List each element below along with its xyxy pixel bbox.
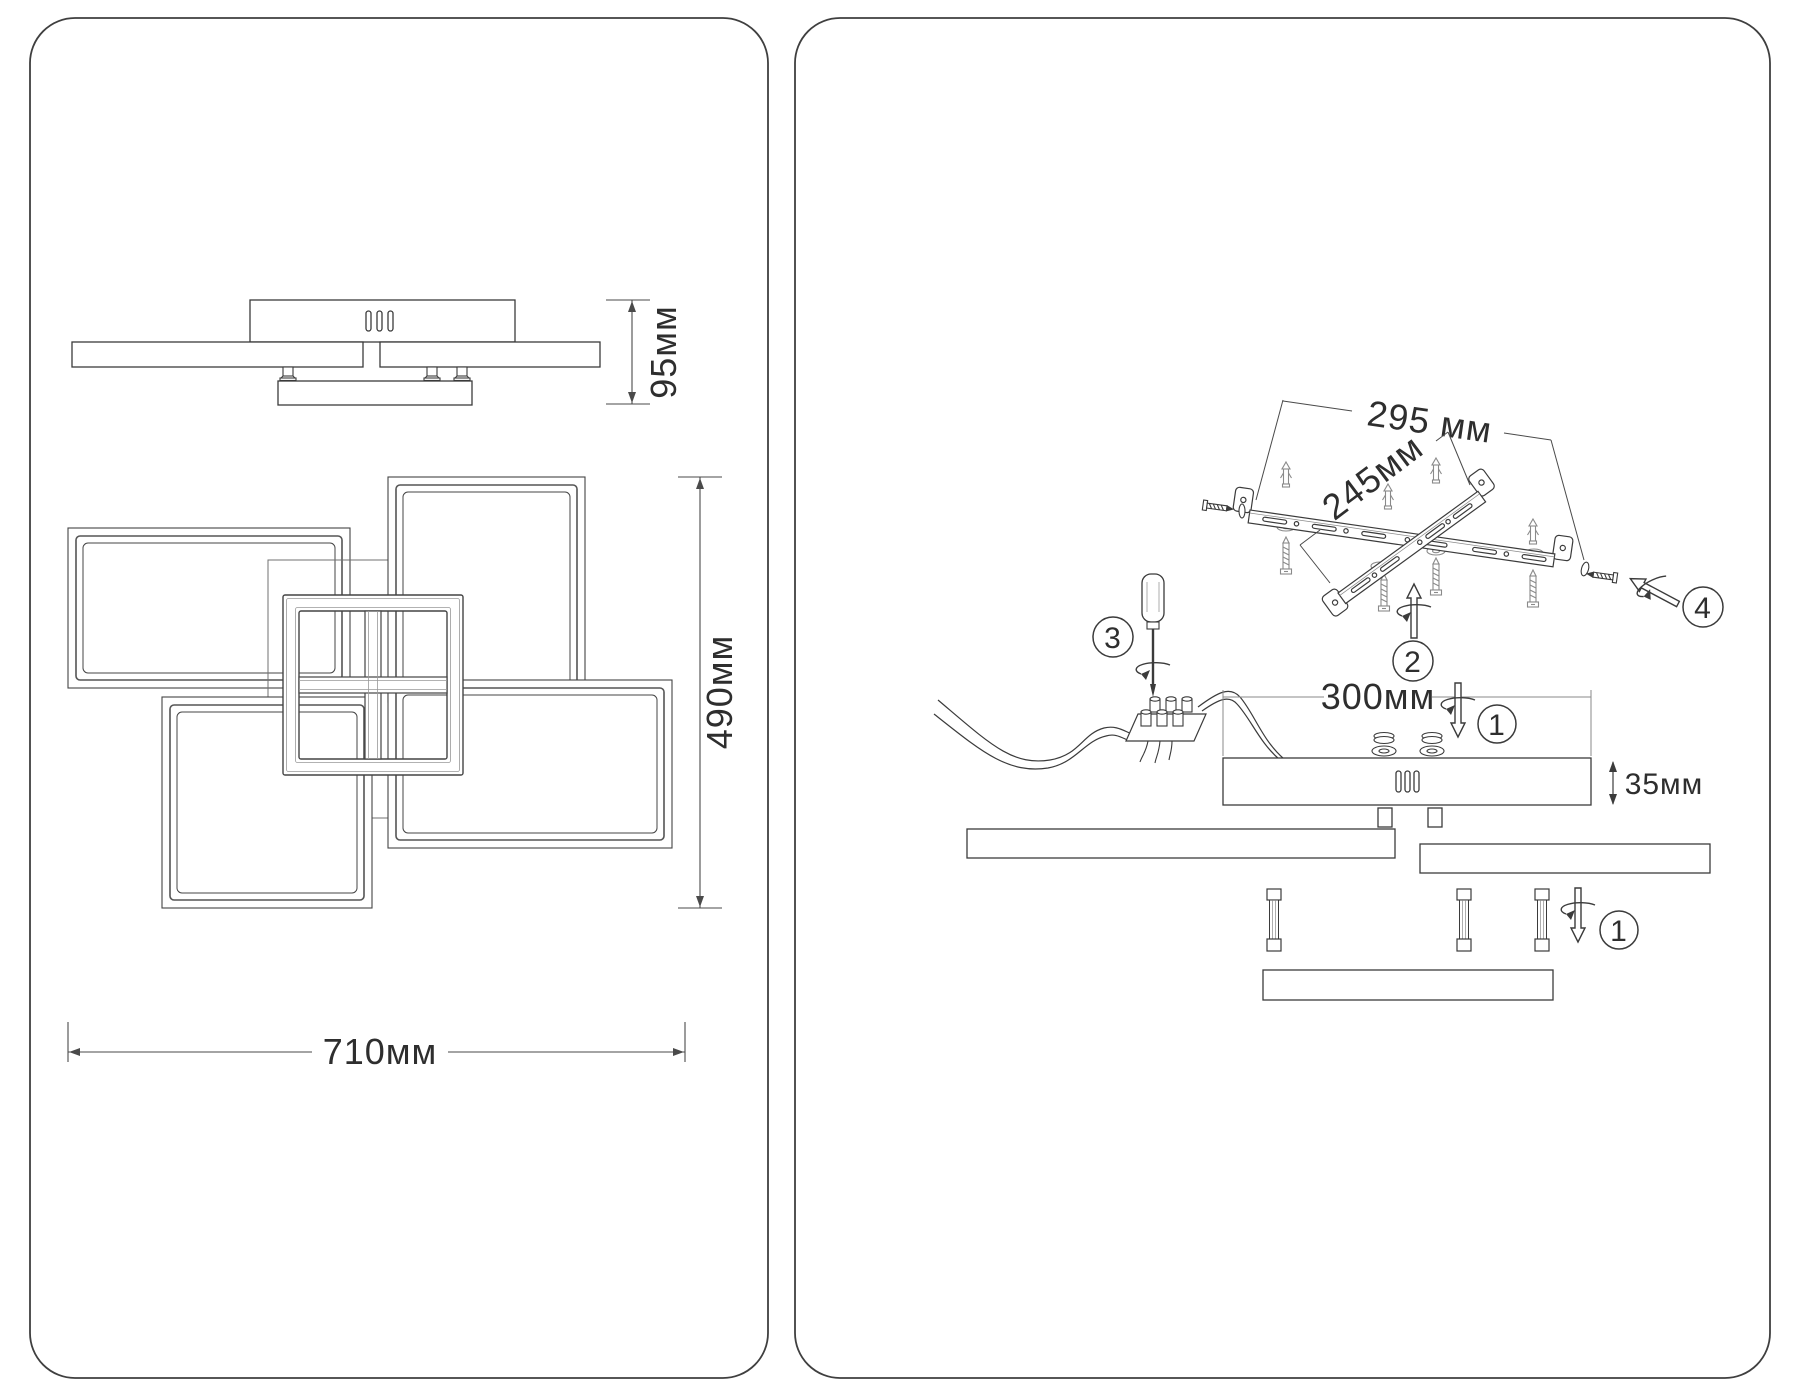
top-view-height-label: 490мм	[699, 635, 740, 750]
canopy-width-label: 300мм	[1321, 676, 1436, 717]
frame-bar-left	[72, 342, 363, 367]
frame-bar	[1263, 970, 1553, 1000]
step-4-badge: 4	[1683, 587, 1723, 627]
step-1-number: 1	[1610, 915, 1628, 948]
standoff-icon	[1267, 889, 1281, 951]
step-3-number: 3	[1104, 622, 1122, 655]
step-1-number: 1	[1488, 709, 1506, 742]
top-view-width-label: 710мм	[323, 1031, 438, 1072]
diagram-canvas: 95мм	[0, 0, 1800, 1400]
standoff-icon	[1535, 889, 1549, 951]
frame-bar	[1420, 844, 1710, 873]
step-3-badge: 3	[1093, 617, 1133, 657]
washer-icon	[1239, 504, 1245, 518]
step-1-badge-bottom: 1	[1600, 911, 1638, 949]
step-2-badge: 2	[1393, 641, 1433, 681]
standoff-icon	[1457, 889, 1471, 951]
canopy-body	[1223, 758, 1591, 805]
step-2-number: 2	[1404, 646, 1422, 679]
canopy-height-label: 35мм	[1625, 768, 1704, 801]
frame-bar	[967, 829, 1395, 858]
step-4-number: 4	[1694, 592, 1712, 625]
lower-frame-bar	[278, 381, 472, 405]
step-1-badge-top: 1	[1478, 705, 1516, 743]
instruction-sheet: 95мм	[0, 0, 1800, 1400]
frame-bar-right	[380, 342, 600, 367]
right-panel-border	[795, 18, 1770, 1378]
side-height-label: 95мм	[643, 305, 684, 399]
frame-top-right	[388, 477, 585, 702]
frame-bottom-left	[162, 697, 372, 908]
